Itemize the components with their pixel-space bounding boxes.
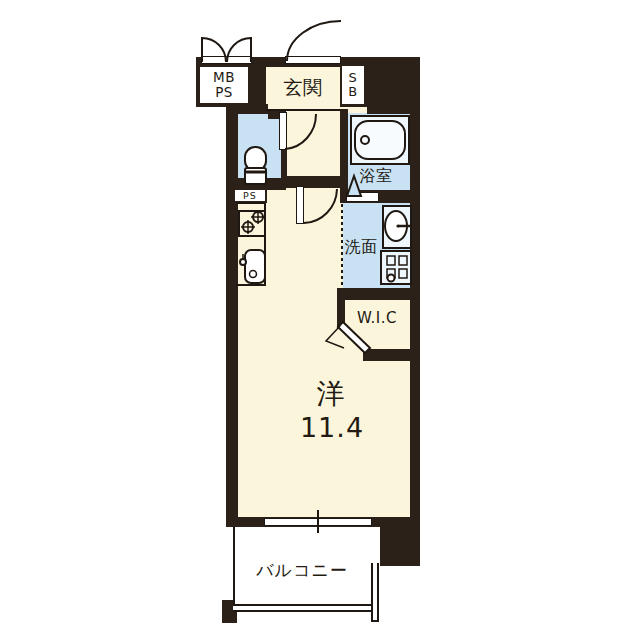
main-room-size: 11.4 <box>300 413 364 442</box>
bathroom-label: 浴室 <box>360 167 393 184</box>
washbasin-symbol <box>383 206 411 248</box>
washroom-label: 洗面 <box>345 238 378 255</box>
entrance-door-arc <box>287 21 341 61</box>
bathtub-symbol <box>351 116 409 164</box>
mbps-double-door-arcs <box>202 38 251 62</box>
genkan-label: 玄関 <box>284 77 323 98</box>
toilet-door-arc <box>285 114 316 149</box>
main-room-label: 洋 <box>317 379 346 409</box>
kitchen-sink-symbol <box>240 250 265 283</box>
mbps-label: MB PS <box>213 70 235 99</box>
ps-label: PS <box>243 191 257 201</box>
stove-symbol <box>239 210 265 236</box>
wic-label: W.I.C <box>357 310 397 326</box>
main-door-arc <box>304 189 337 223</box>
floor-plan: MB PS 玄関 S B 浴室 洗面 W.I.C PS 洋 11.4 バルコニー <box>0 0 640 640</box>
washing-machine-symbol <box>381 251 411 284</box>
toilet-symbol <box>245 147 266 184</box>
sb-label: S B <box>348 71 357 99</box>
balcony-label: バルコニー <box>256 561 348 579</box>
